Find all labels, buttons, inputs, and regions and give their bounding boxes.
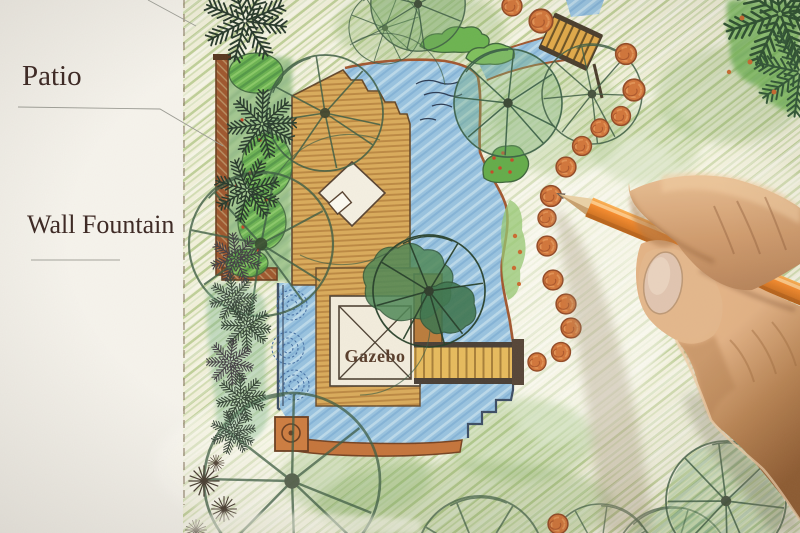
svg-text:Wall Fountain: Wall Fountain bbox=[27, 210, 174, 239]
svg-text:Patio: Patio bbox=[22, 60, 82, 92]
